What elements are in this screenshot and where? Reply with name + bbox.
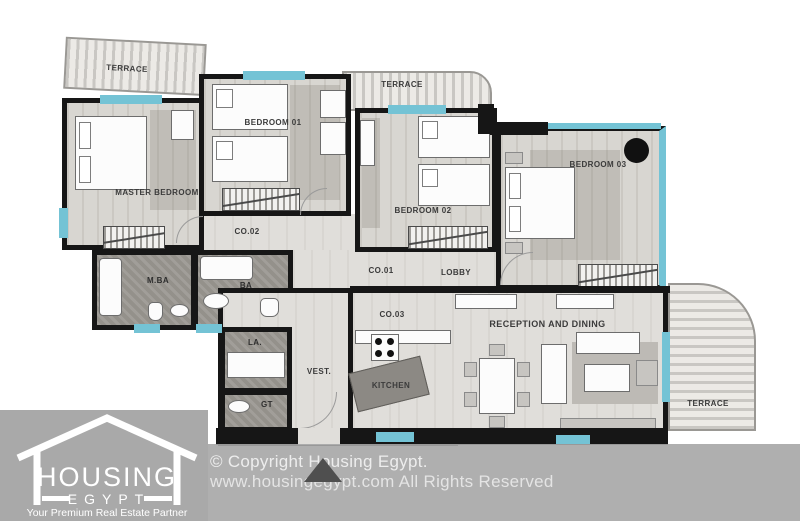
bedroom02-top-window bbox=[388, 105, 446, 114]
mba-sink bbox=[170, 304, 189, 317]
bedroom03-closet-hatch bbox=[578, 264, 658, 287]
sofa bbox=[541, 344, 567, 404]
kitchen-label: KITCHEN bbox=[360, 381, 422, 391]
bedroom03-bed-pillow bbox=[509, 173, 521, 199]
master-closet-hatch bbox=[103, 226, 165, 249]
reception-right-window bbox=[662, 332, 670, 402]
coffee-table bbox=[584, 364, 630, 392]
stove-burner bbox=[375, 338, 382, 345]
master-top-window bbox=[100, 95, 162, 104]
dining-chair bbox=[489, 344, 505, 356]
reception-label: RECEPTION AND DINING bbox=[465, 319, 630, 330]
laundry-label: LA. bbox=[230, 338, 280, 348]
co03-label: CO.03 bbox=[367, 310, 417, 320]
stove-burner bbox=[375, 350, 382, 357]
dining-chair bbox=[464, 392, 477, 407]
ba-bottom-window bbox=[196, 324, 222, 333]
vestibule-label: VEST. bbox=[296, 367, 342, 377]
floor-plan-image: TERRACE TERRACE TERRACE MASTER BEDROOM B… bbox=[0, 0, 800, 521]
bedroom01-closet-hatch bbox=[222, 188, 300, 211]
logo-tagline: Your Premium Real Estate Partner bbox=[27, 507, 188, 518]
master-wardrobe bbox=[171, 110, 194, 140]
dining-table bbox=[479, 358, 515, 414]
bedroom03-top-window bbox=[548, 123, 661, 129]
co02-label: CO.02 bbox=[222, 227, 272, 237]
bedroom-01-label: BEDROOM 01 bbox=[218, 118, 328, 128]
logo-sub: EGYPT bbox=[68, 491, 150, 507]
bedroom02-wardrobe bbox=[360, 120, 375, 166]
mba-bottom-window bbox=[134, 324, 160, 333]
lobby-reception-wall bbox=[350, 286, 670, 293]
armchair bbox=[636, 360, 658, 386]
bedroom03-bed-pillow bbox=[509, 206, 521, 232]
lobby-label: LOBBY bbox=[426, 268, 486, 278]
corridor-link-floor bbox=[293, 250, 355, 292]
bedroom02-closet-hatch bbox=[408, 226, 488, 249]
mba-toilet bbox=[148, 302, 163, 321]
bath-label: BA bbox=[226, 281, 266, 291]
bedroom-03-label: BEDROOM 03 bbox=[543, 160, 653, 170]
sideboard bbox=[556, 294, 614, 309]
terrace-top-mid-label: TERRACE bbox=[362, 80, 442, 90]
dining-chair bbox=[517, 392, 530, 407]
master-bed-pillow bbox=[79, 122, 91, 149]
sofa bbox=[576, 332, 640, 354]
bottom-window bbox=[556, 435, 590, 444]
co01-label: CO.01 bbox=[356, 266, 406, 276]
copyright-line2: www.housingegypt.com All Rights Reserved bbox=[210, 472, 554, 492]
entrance-arrow-icon bbox=[304, 458, 342, 482]
bedroom03-corner-wall bbox=[490, 122, 548, 135]
terrace-right-label: TERRACE bbox=[672, 399, 744, 409]
master-left-window bbox=[59, 208, 68, 238]
bedroom02-bed-pillow bbox=[422, 121, 438, 139]
bedroom03-nightstand bbox=[505, 242, 523, 254]
bedroom-02-label: BEDROOM 02 bbox=[368, 206, 478, 216]
kitchen-counter bbox=[355, 330, 451, 344]
bedroom01-bed-pillow bbox=[216, 141, 233, 160]
sideboard bbox=[455, 294, 517, 309]
bedroom02-bed-pillow bbox=[422, 169, 438, 187]
master-bed-pillow bbox=[79, 156, 91, 183]
mba-bathtub bbox=[99, 258, 122, 316]
guest-toilet-label: GT bbox=[252, 400, 282, 410]
master-bedroom-label: MASTER BEDROOM bbox=[113, 188, 201, 198]
bedroom03-nightstand bbox=[505, 152, 523, 164]
bottom-outer-wall bbox=[216, 428, 668, 445]
laundry-counter bbox=[227, 352, 285, 378]
gt-sink bbox=[228, 400, 250, 413]
logo-name: HOUSING bbox=[37, 462, 177, 492]
house-logo-icon: HOUSING EGYPT Your Premium Real Estate P… bbox=[12, 412, 202, 518]
ba-sink bbox=[203, 293, 229, 309]
bottom-window bbox=[376, 432, 414, 442]
stove-burner bbox=[387, 338, 394, 345]
bedroom01-bed-pillow bbox=[216, 89, 233, 108]
ba-bathtub bbox=[200, 256, 253, 280]
dining-chair bbox=[464, 362, 477, 377]
dining-chair bbox=[517, 362, 530, 377]
stove-burner bbox=[387, 350, 394, 357]
ba-toilet bbox=[260, 298, 279, 317]
master-bath-label: M.BA bbox=[128, 276, 188, 286]
dining-chair bbox=[489, 416, 505, 428]
terrace-right bbox=[668, 283, 756, 431]
entry-gap bbox=[298, 428, 340, 445]
bedroom01-top-window bbox=[243, 71, 305, 80]
bedroom01-wardrobe bbox=[320, 90, 346, 118]
